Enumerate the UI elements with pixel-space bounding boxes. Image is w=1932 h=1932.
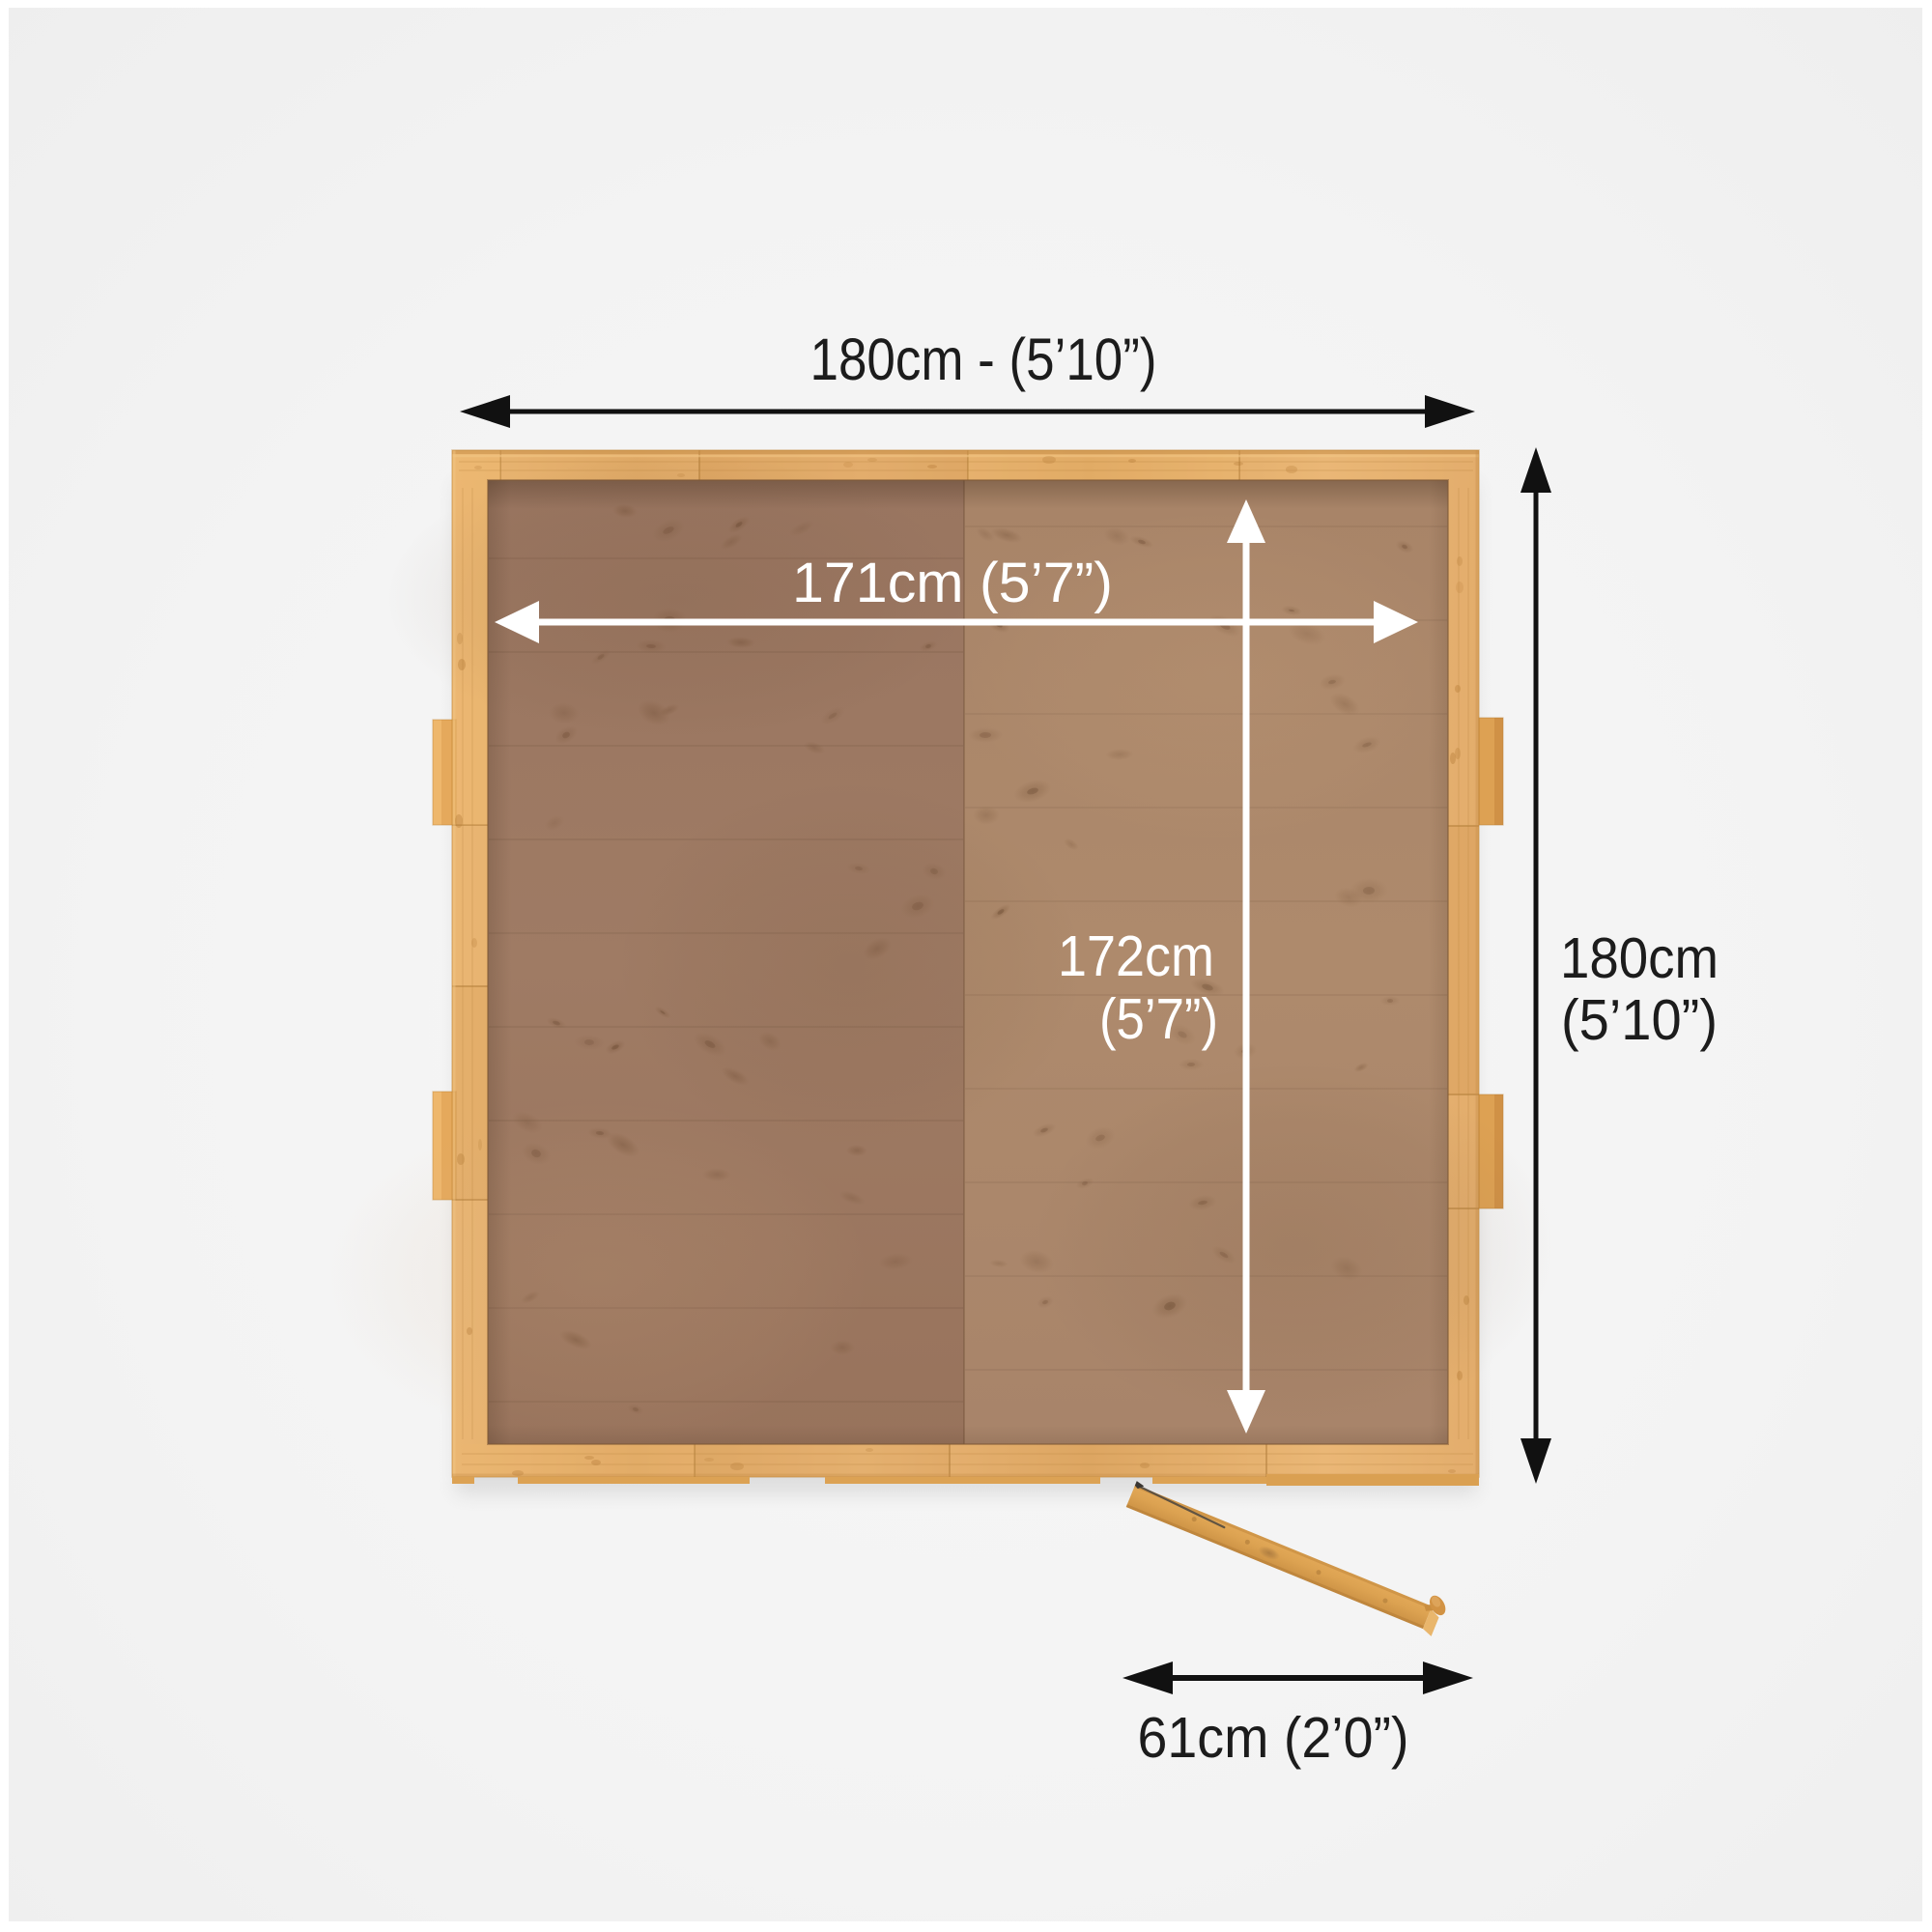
- svg-text:(5’10”): (5’10”): [1561, 988, 1718, 1052]
- svg-text:(5’7”): (5’7”): [1099, 987, 1218, 1051]
- svg-text:171cm (5’7”): 171cm (5’7”): [792, 552, 1113, 614]
- svg-text:180cm: 180cm: [1560, 926, 1719, 990]
- svg-text:180cm - (5’10”): 180cm - (5’10”): [810, 327, 1157, 392]
- svg-text:172cm: 172cm: [1058, 924, 1214, 988]
- svg-text:61cm (2’0”): 61cm (2’0”): [1138, 1706, 1409, 1770]
